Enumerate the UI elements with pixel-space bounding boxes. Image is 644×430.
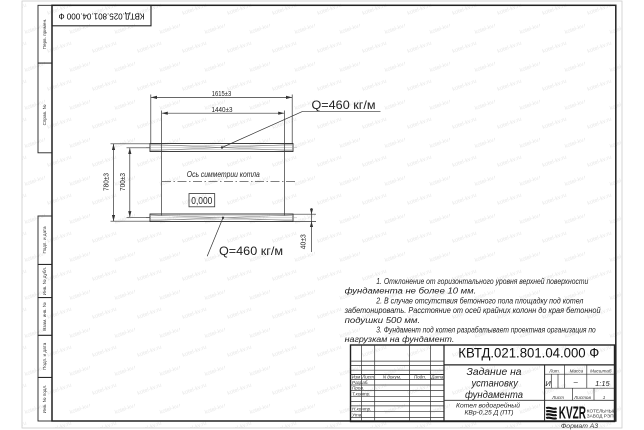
svg-text:Ось симметрии котла: Ось симметрии котла (187, 169, 260, 179)
svg-text:И: И (545, 379, 551, 388)
svg-text:установку: установку (471, 377, 519, 389)
svg-text:Лит.: Лит. (548, 369, 560, 374)
svg-text:ЗАВОД РЭП: ЗАВОД РЭП (587, 414, 614, 419)
svg-text:Инв. № дубл.: Инв. № дубл. (42, 267, 47, 295)
svg-text:1440±3: 1440±3 (212, 105, 233, 114)
svg-text:Формат А3: Формат А3 (561, 423, 598, 430)
svg-text:Лист: Лист (361, 375, 374, 380)
svg-text:нагрузкам на фундамент.: нагрузкам на фундамент. (345, 335, 455, 344)
svg-text:Котел водогрейный: Котел водогрейный (456, 402, 521, 410)
svg-text:Масштаб: Масштаб (590, 369, 612, 374)
svg-text:0,000: 0,000 (191, 196, 212, 207)
svg-text:Взам. инв. №: Взам. инв. № (42, 302, 47, 331)
svg-text:2. В случае отсутствия бетонно: 2. В случае отсутствия бетонного пола пл… (375, 296, 583, 305)
svg-text:40±3: 40±3 (299, 234, 308, 249)
svg-text:Листов: Листов (573, 395, 591, 400)
svg-text:Масса: Масса (570, 369, 584, 374)
svg-text:Справ. №: Справ. № (42, 105, 47, 126)
svg-text:КВТД.021.801.04.000 Ф: КВТД.021.801.04.000 Ф (458, 345, 599, 360)
svg-text:Перв. примен.: Перв. примен. (42, 19, 47, 50)
svg-text:1. Отклонение от горизонтально: 1. Отклонение от горизонтального уровня … (376, 277, 588, 286)
svg-text:KVZR: KVZR (559, 404, 586, 424)
svg-text:Q=460 кг/м: Q=460 кг/м (312, 98, 376, 112)
svg-text:Подп. и дата: Подп. и дата (42, 226, 47, 254)
svg-text:1:15: 1:15 (595, 379, 610, 388)
svg-text:Изм: Изм (352, 375, 361, 380)
svg-text:Подп. и дата: Подп. и дата (42, 342, 47, 370)
svg-text:забетонировать. Расстояние от: забетонировать. Расстояние от осей крайн… (344, 306, 601, 315)
svg-text:Лист: Лист (551, 395, 564, 400)
svg-text:Инв. № подл.: Инв. № подл. (42, 385, 47, 414)
svg-text:Разраб.: Разраб. (352, 380, 369, 385)
svg-text:1615±3: 1615±3 (212, 89, 232, 98)
svg-text:КОТЕЛЬНЫЙ: КОТЕЛЬНЫЙ (587, 406, 616, 413)
svg-text:Q=460 кг/м: Q=460 кг/м (219, 244, 283, 258)
svg-text:3. Фундамент под котел разраба: 3. Фундамент под котел разрабатывает про… (376, 326, 596, 335)
svg-text:Дата: Дата (430, 375, 444, 380)
svg-text:780±3: 780±3 (102, 173, 111, 191)
svg-text:Задание на: Задание на (467, 366, 522, 378)
svg-text:подушки 500 мм.: подушки 500 мм. (345, 316, 421, 325)
svg-text:фундамента не более 10 мм.: фундамента не более 10 мм. (345, 287, 477, 296)
svg-text:1: 1 (603, 395, 606, 400)
svg-text:КВр-0,25 Д (ПТ): КВр-0,25 Д (ПТ) (465, 409, 514, 416)
svg-text:Пров.: Пров. (352, 386, 364, 391)
svg-text:КВТД.025.801.04.000 Ф: КВТД.025.801.04.000 Ф (59, 11, 145, 20)
svg-text:Т.контр.: Т.контр. (352, 391, 371, 396)
svg-text:N докум.: N докум. (383, 375, 402, 380)
svg-text:Н.контр.: Н.контр. (352, 407, 371, 412)
svg-text:фундамента: фундамента (465, 389, 523, 401)
svg-text:Утв.: Утв. (352, 412, 362, 417)
svg-text:700±3: 700±3 (118, 173, 127, 191)
svg-text:Подп.: Подп. (414, 375, 426, 380)
